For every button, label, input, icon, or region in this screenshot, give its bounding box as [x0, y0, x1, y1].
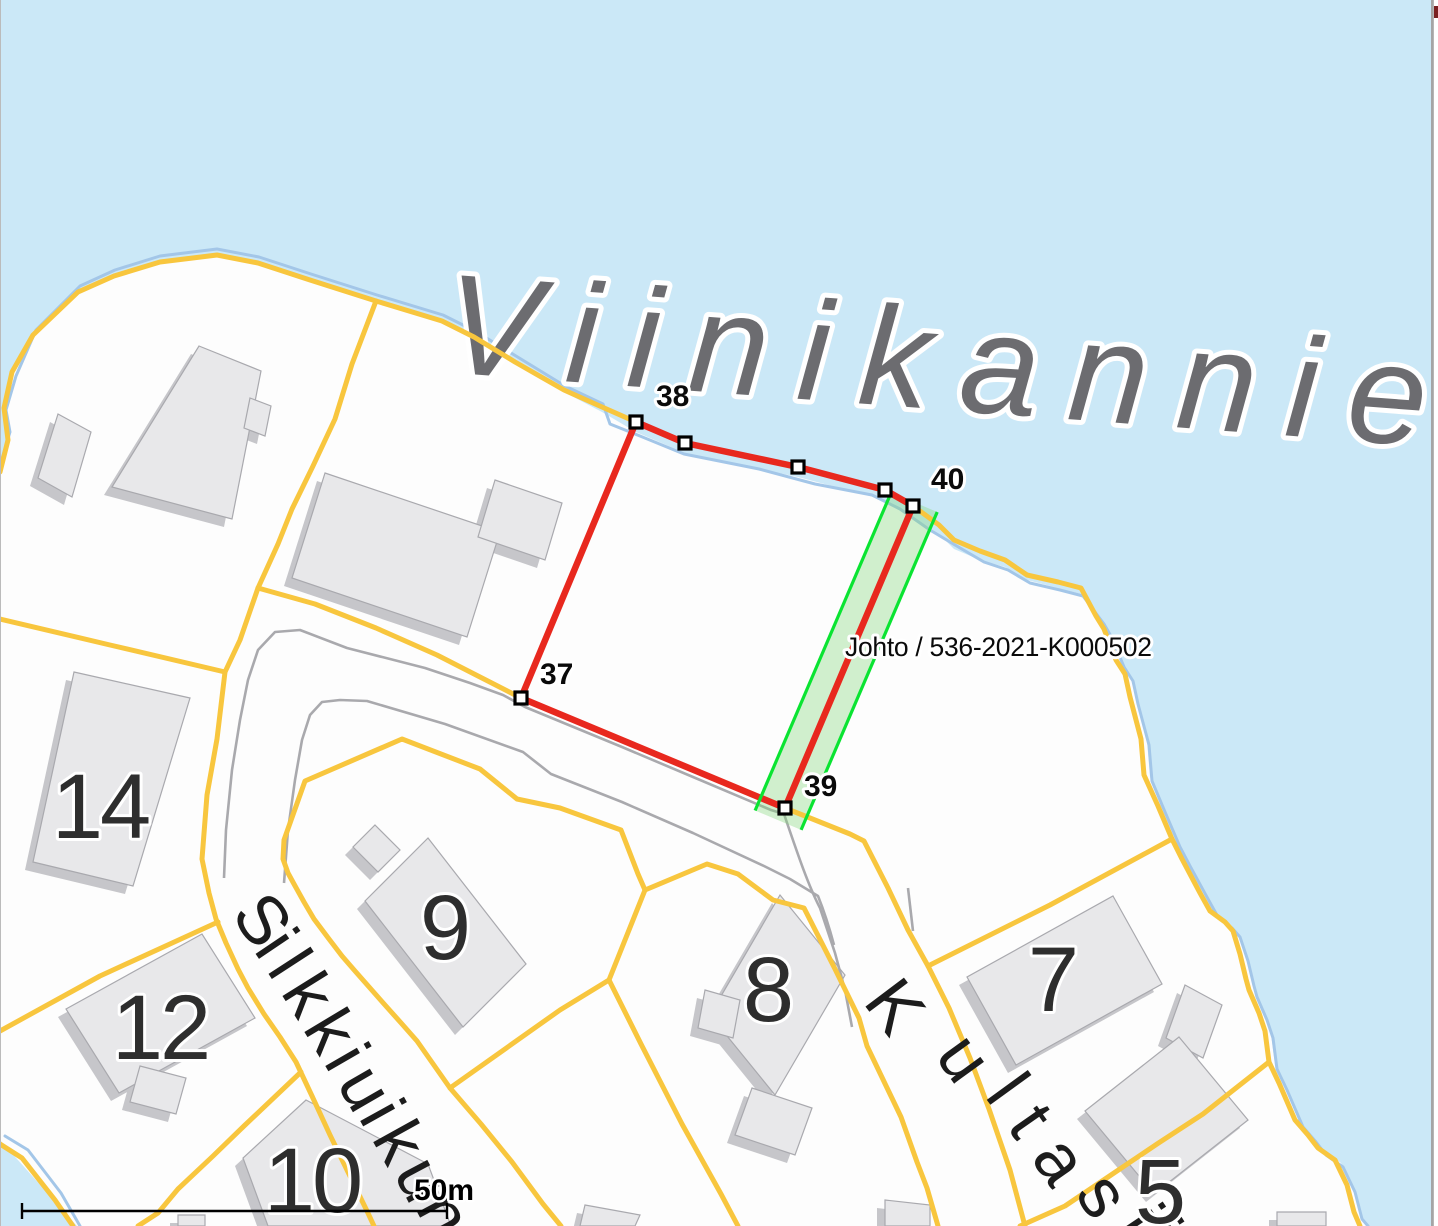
svg-text:50m: 50m: [414, 1174, 474, 1207]
svg-text:5: 5: [1135, 1141, 1183, 1226]
svg-text:40: 40: [931, 463, 964, 496]
svg-text:39: 39: [804, 770, 837, 803]
svg-text:12: 12: [112, 977, 208, 1079]
svg-text:38: 38: [656, 380, 689, 413]
svg-text:37: 37: [540, 658, 573, 691]
svg-text:14: 14: [52, 756, 149, 858]
svg-text:8: 8: [743, 939, 791, 1041]
svg-text:Johto / 536-2021-K000502: Johto / 536-2021-K000502: [845, 632, 1152, 662]
svg-text:9: 9: [420, 877, 468, 979]
svg-text:7: 7: [1028, 929, 1076, 1031]
